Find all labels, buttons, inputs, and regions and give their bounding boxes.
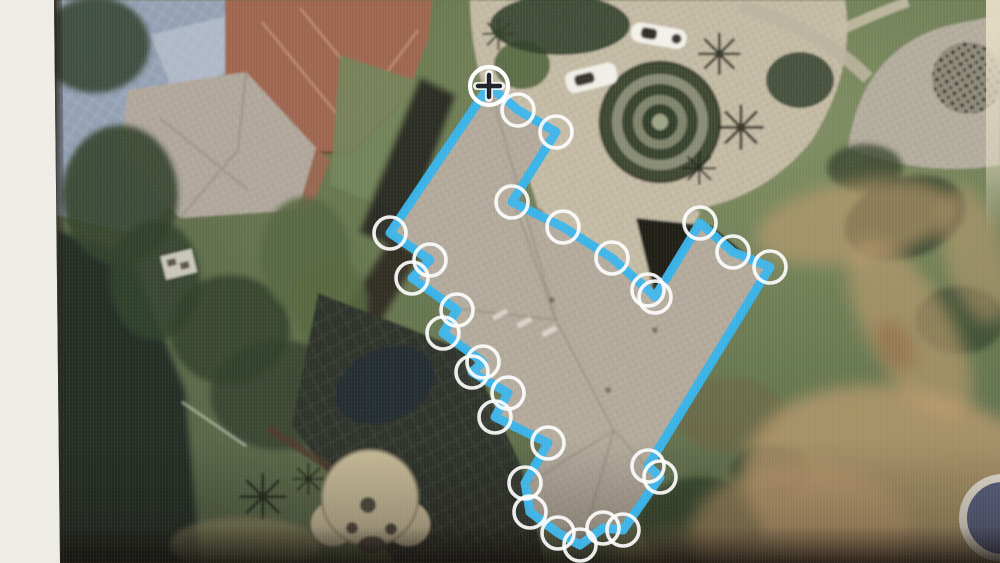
polygon-vertex-handle[interactable] xyxy=(684,207,716,239)
polygon-vertex-handle[interactable] xyxy=(542,517,574,549)
polygon-vertex-handle[interactable] xyxy=(496,186,528,218)
polygon-vertex-handle[interactable] xyxy=(532,427,564,459)
polygon-vertex-handle[interactable] xyxy=(502,94,534,126)
polygon-vertex-handle[interactable] xyxy=(467,346,499,378)
polygon-vertex-handle[interactable] xyxy=(596,242,628,274)
screen-bezel-white-strip xyxy=(0,0,60,563)
polygon-vertex-handle[interactable] xyxy=(509,467,541,499)
polygon-vertex-handle[interactable] xyxy=(492,377,524,409)
svg-text:✳: ✳ xyxy=(680,142,719,196)
polygon-vertex-handle[interactable] xyxy=(547,211,579,243)
screen-photo: ✳ ✳ ✳ ✳ ✳ ✳ xyxy=(0,0,1000,563)
polygon-vertex-handle[interactable] xyxy=(374,217,406,249)
bush-right-courtyard xyxy=(766,52,834,108)
polygon-vertex-handle[interactable] xyxy=(754,251,786,283)
start-vertex-crosshair[interactable] xyxy=(470,67,508,105)
polygon-vertex-handle[interactable] xyxy=(514,496,546,528)
bottom-vignette xyxy=(0,440,1000,563)
polygon-vertex-handle[interactable] xyxy=(644,461,676,493)
svg-text:✳: ✳ xyxy=(695,21,744,89)
polygon-vertex-handle[interactable] xyxy=(540,116,572,148)
polygon-vertex-handle[interactable] xyxy=(639,281,671,313)
svg-text:✳: ✳ xyxy=(715,92,767,165)
polygon-vertex-handle[interactable] xyxy=(414,244,446,276)
right-edge-glare xyxy=(986,0,1000,235)
polygon-vertex-handle[interactable] xyxy=(441,294,473,326)
polygon-vertex-handle[interactable] xyxy=(717,236,749,268)
aerial-map-canvas: ✳ ✳ ✳ ✳ ✳ ✳ xyxy=(0,0,1000,563)
